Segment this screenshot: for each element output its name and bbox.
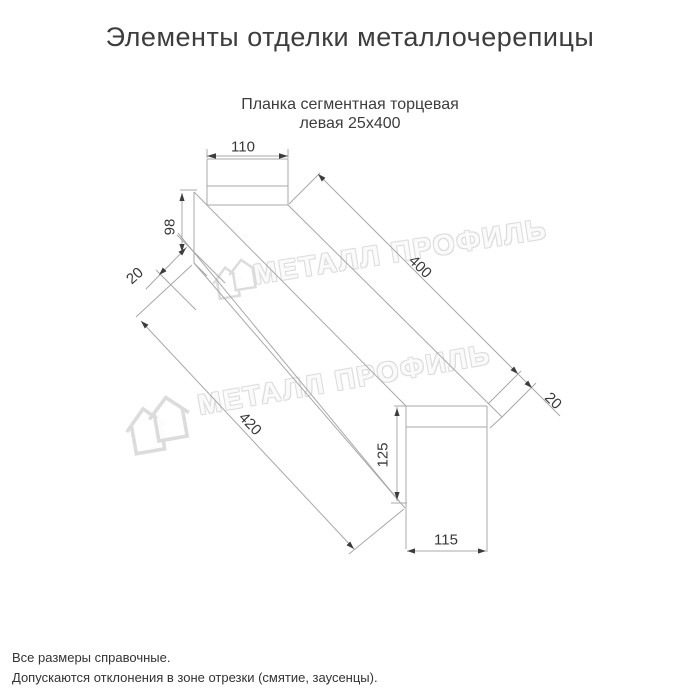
object-lines (156, 159, 502, 552)
dimension-arrows (141, 153, 532, 553)
top-end-view (207, 159, 288, 205)
dim-label-left-height: 98 (162, 219, 179, 236)
footnote-line1: Все размеры справочные. (12, 648, 378, 668)
dim-20-left-lines (146, 235, 225, 289)
dim-125-lines (391, 406, 407, 503)
footnote-line2: Допускаются отклонения в зоне отрезки (с… (12, 668, 378, 688)
technical-drawing (0, 0, 700, 700)
dim-label-bottom-width: 115 (434, 532, 458, 549)
dim-420-lines (136, 265, 404, 554)
catalog-drawing-page: Элементы отделки металлочерепицы Планка … (0, 0, 700, 700)
strip-body-edges (156, 192, 502, 508)
dim-label-right-height: 125 (375, 442, 392, 467)
right-end-hem (490, 417, 502, 428)
footnotes: Все размеры справочные. Допускаются откл… (12, 648, 378, 688)
dimension-lines (136, 149, 560, 554)
dim-400-lines (289, 173, 560, 417)
dim-label-top-width: 110 (231, 139, 255, 156)
bottom-end-view (406, 406, 487, 552)
